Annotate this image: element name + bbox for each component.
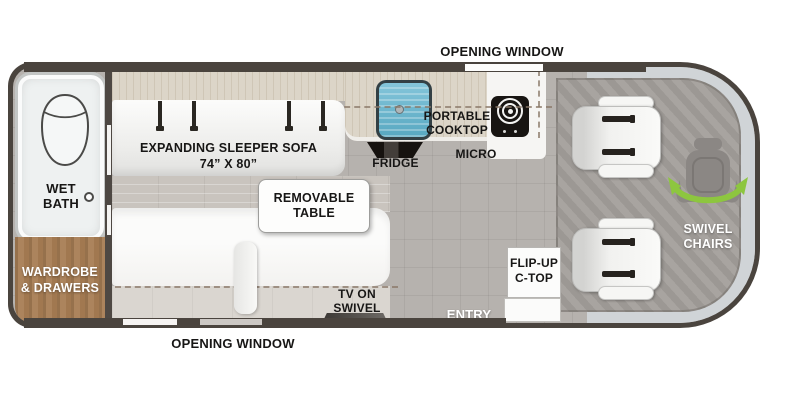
wet-bath-room: WET BATH — [15, 72, 107, 243]
portable-cooktop-label: PORTABLE COOKTOP — [395, 109, 519, 137]
sliding-door-segment — [107, 205, 111, 235]
bottom-wall — [24, 318, 506, 328]
seat-belt-icon — [602, 271, 633, 277]
sofa-armrest — [234, 242, 257, 314]
seat-belt-icon — [602, 239, 633, 245]
seat-belt-icon — [602, 116, 633, 122]
swivel-chairs-label: SWIVEL CHAIRS — [666, 222, 750, 252]
opening-window-bottom — [123, 319, 177, 325]
wardrobe-drawers: WARDROBE & DRAWERS — [15, 237, 105, 323]
entry-step — [504, 298, 561, 322]
seat-belt-icon — [287, 101, 291, 127]
top-wall — [24, 62, 646, 72]
opening-window-top — [465, 64, 543, 71]
vehicle-body-outline: EXPANDING SLEEPER SOFA 74” X 80” TV ON S… — [8, 62, 760, 328]
sofa-back-shelf — [112, 71, 345, 101]
fridge-label: FRIDGE — [353, 156, 438, 170]
flip-up-countertop-label: FLIP-UP C-TOP — [508, 256, 560, 285]
swivel-chair-passenger — [572, 228, 661, 292]
window-segment — [200, 319, 262, 325]
seat-belt-icon — [158, 101, 162, 127]
sliding-door-segment — [107, 125, 111, 175]
seat-belt-icon — [192, 101, 196, 127]
toilet-icon — [38, 92, 92, 168]
vehicle-interior: EXPANDING SLEEPER SOFA 74” X 80” TV ON S… — [13, 67, 755, 323]
drain-icon — [84, 192, 94, 202]
chair-armrest — [598, 164, 654, 178]
table-label: REMOVABLE TABLE — [259, 191, 369, 221]
wardrobe-label: WARDROBE & DRAWERS — [15, 264, 105, 296]
opening-window-label-bottom: OPENING WINDOW — [133, 336, 333, 351]
flip-up-countertop: FLIP-UP C-TOP — [507, 247, 561, 298]
tv-label: TV ON SWIVEL — [297, 287, 417, 315]
opening-window-label-top: OPENING WINDOW — [402, 44, 602, 59]
seat-belt-icon — [602, 149, 633, 155]
rv-floorplan: OPENING WINDOW OPENING WINDOW — [0, 0, 800, 400]
sofa-label: EXPANDING SLEEPER SOFA 74” X 80” — [112, 141, 345, 172]
bath-partition-wall — [105, 71, 112, 323]
micro-label: MICRO — [441, 147, 511, 161]
seat-belt-icon — [321, 101, 325, 127]
counter-edge-dash — [538, 70, 540, 138]
chair-armrest — [598, 286, 654, 300]
removable-table: REMOVABLE TABLE — [258, 179, 370, 233]
swivel-seat-icon — [666, 136, 750, 220]
